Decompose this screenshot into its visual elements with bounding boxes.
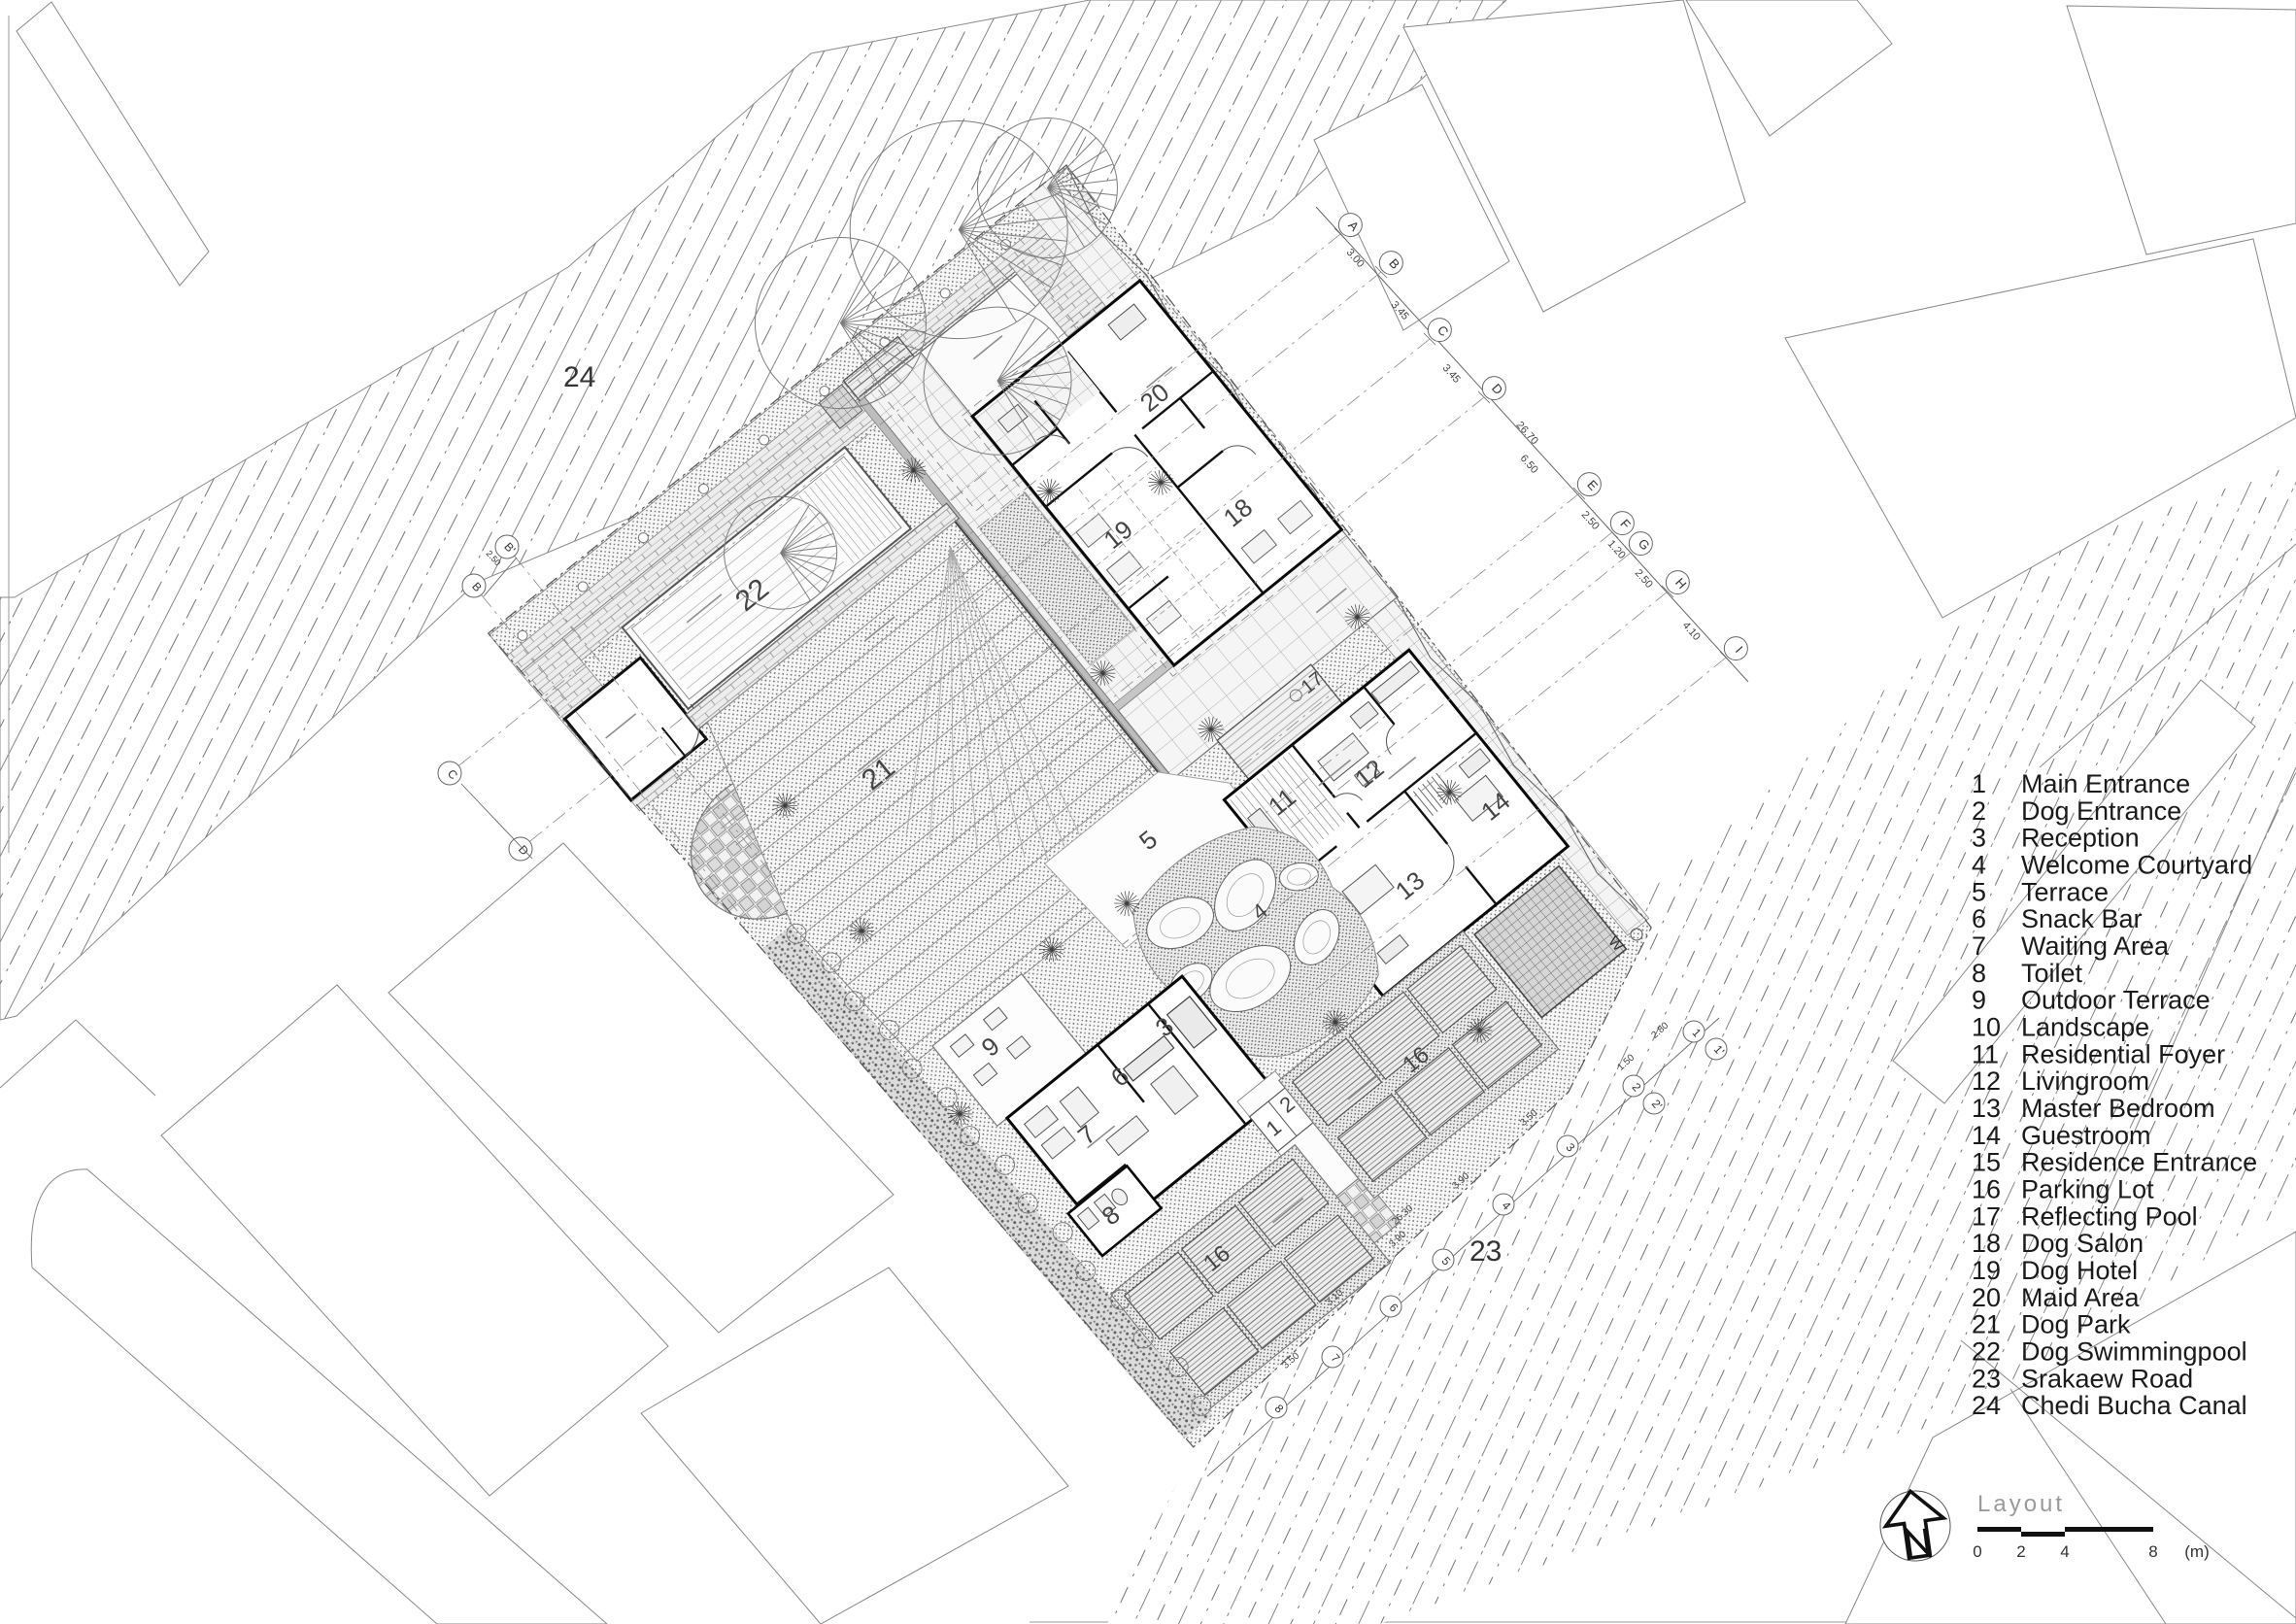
svg-text:Dog Entrance: Dog Entrance — [2021, 796, 2181, 826]
svg-text:Toilet: Toilet — [2021, 959, 2083, 988]
svg-text:11: 11 — [1972, 1039, 1999, 1068]
svg-text:Srakaew Road: Srakaew Road — [2021, 1364, 2193, 1393]
svg-text:Terrace: Terrace — [2021, 877, 2109, 906]
svg-text:Dog Hotel: Dog Hotel — [2021, 1256, 2138, 1285]
svg-text:2: 2 — [2016, 1542, 2025, 1561]
svg-text:Snack Bar: Snack Bar — [2021, 904, 2143, 933]
svg-text:Maid Area: Maid Area — [2021, 1283, 2141, 1312]
svg-text:19: 19 — [1972, 1256, 2001, 1285]
svg-text:Guestroom: Guestroom — [2021, 1121, 2151, 1150]
svg-text:17: 17 — [1972, 1201, 2001, 1231]
svg-text:5: 5 — [1972, 877, 1986, 906]
svg-text:0: 0 — [1973, 1542, 1981, 1561]
svg-text:23: 23 — [1469, 1235, 1502, 1268]
svg-text:8: 8 — [1972, 959, 1986, 988]
svg-text:4: 4 — [2060, 1542, 2069, 1561]
svg-text:15: 15 — [1972, 1148, 2001, 1177]
svg-text:1: 1 — [1972, 769, 1986, 798]
svg-text:Dog Swimmingpool: Dog Swimmingpool — [2021, 1336, 2247, 1366]
svg-text:21: 21 — [1972, 1310, 2001, 1339]
svg-text:18: 18 — [1972, 1229, 2001, 1258]
svg-text:Residential Foyer: Residential Foyer — [2021, 1039, 2225, 1068]
svg-text:12: 12 — [1972, 1066, 2001, 1096]
svg-text:13: 13 — [1972, 1094, 2001, 1123]
svg-text:Master Bedroom: Master Bedroom — [2021, 1094, 2215, 1123]
svg-text:Outdoor Terrace: Outdoor Terrace — [2021, 986, 2211, 1015]
svg-text:Livingroom: Livingroom — [2021, 1066, 2149, 1096]
svg-text:Waiting Area: Waiting Area — [2021, 931, 2170, 961]
svg-text:Chedi Bucha Canal: Chedi Bucha Canal — [2021, 1391, 2247, 1420]
svg-text:20: 20 — [1972, 1283, 2001, 1312]
svg-text:Reflecting Pool: Reflecting Pool — [2021, 1201, 2198, 1231]
svg-text:Residence Entrance: Residence Entrance — [2021, 1148, 2257, 1177]
svg-text:Layout: Layout — [1977, 1491, 2065, 1517]
svg-text:24: 24 — [563, 361, 595, 393]
svg-text:Landscape: Landscape — [2021, 1012, 2149, 1041]
svg-text:10: 10 — [1972, 1012, 2001, 1041]
svg-text:Main Entrance: Main Entrance — [2021, 769, 2190, 798]
svg-text:(m): (m) — [2184, 1542, 2209, 1561]
svg-text:2: 2 — [1972, 796, 1986, 826]
svg-text:Dog Salon: Dog Salon — [2021, 1229, 2144, 1258]
svg-text:16: 16 — [1972, 1174, 2001, 1203]
svg-text:6: 6 — [1972, 904, 1986, 933]
svg-text:14: 14 — [1972, 1121, 2001, 1150]
svg-text:22: 22 — [1972, 1336, 2001, 1366]
svg-text:3: 3 — [1972, 824, 1986, 853]
svg-text:Parking Lot: Parking Lot — [2021, 1174, 2154, 1203]
svg-text:4: 4 — [1972, 850, 1986, 879]
svg-text:Reception: Reception — [2021, 824, 2140, 853]
svg-text:Dog Park: Dog Park — [2021, 1310, 2131, 1339]
svg-text:Welcome Courtyard: Welcome Courtyard — [2021, 850, 2252, 879]
svg-text:24: 24 — [1972, 1391, 2001, 1420]
svg-text:8: 8 — [2148, 1542, 2157, 1561]
svg-text:7: 7 — [1972, 931, 1986, 961]
svg-text:9: 9 — [1972, 986, 1986, 1015]
svg-text:23: 23 — [1972, 1364, 2001, 1393]
